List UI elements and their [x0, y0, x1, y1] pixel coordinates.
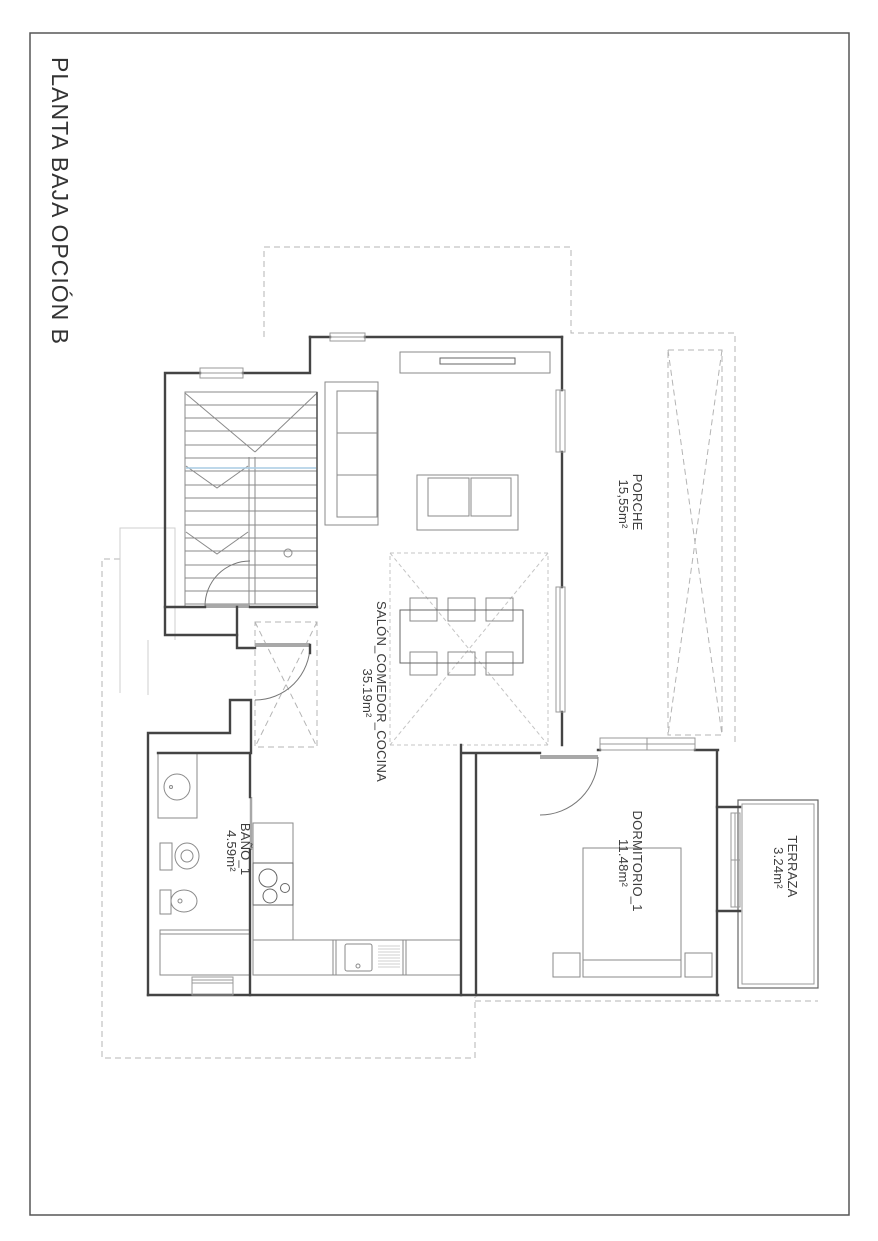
burner-icon [259, 869, 277, 887]
terraza-deck [738, 800, 818, 988]
burner-icon [281, 884, 290, 893]
kitchen-sink [345, 944, 400, 971]
bidet [160, 890, 197, 914]
terraza-window [731, 813, 740, 907]
living-window-1 [556, 390, 565, 452]
windows [192, 333, 740, 995]
nightstand [685, 953, 712, 977]
dining-ceiling-marker [390, 553, 548, 745]
walls [148, 337, 740, 995]
living-top-window [330, 333, 365, 341]
coffee-table [417, 475, 518, 530]
stair-newel-post [284, 549, 292, 557]
tv-icon [440, 358, 515, 364]
bedroom-window [600, 738, 695, 750]
page-title: PLANTA BAJA OPCIÓN B [47, 57, 73, 345]
dining-table [400, 610, 523, 663]
room-label-salon: SALÓN_COMEDOR_COCINA 35.19m² [360, 601, 389, 785]
nightstand [553, 953, 580, 977]
drain-icon [356, 964, 360, 968]
dining-set [400, 598, 523, 675]
entry-canopy-marker [255, 622, 317, 747]
stairs [185, 392, 317, 607]
shower-tray [160, 930, 250, 975]
drainboard [378, 946, 400, 967]
stair-rail [249, 457, 255, 604]
kitchen-counter [253, 823, 461, 975]
sofa [325, 382, 378, 525]
living-window-2 [556, 587, 565, 712]
room-label-porche: PORCHE 15,55m² [616, 474, 645, 535]
sheet-border [30, 33, 849, 1215]
room-label-bano: BAÑO_1 4.59m² [224, 823, 253, 879]
room-label-dormitorio: DORMITORIO_1 11.48m² [616, 811, 645, 916]
burner-icon [263, 889, 277, 903]
terrain-lines [120, 528, 175, 695]
room-label-terraza: TERRAZA 3.24m² [771, 835, 800, 900]
porch-pergola-marker [668, 350, 722, 735]
tv-unit [400, 352, 550, 373]
cooktop [253, 863, 293, 905]
stair-door [205, 561, 250, 606]
washbasin [158, 753, 197, 818]
bedroom-door [540, 757, 598, 815]
toilet [160, 843, 199, 870]
stair-window [200, 368, 243, 378]
bathroom-window [192, 977, 233, 995]
floor-plan-canvas: PLANTA BAJA OPCIÓN B [0, 0, 878, 1241]
